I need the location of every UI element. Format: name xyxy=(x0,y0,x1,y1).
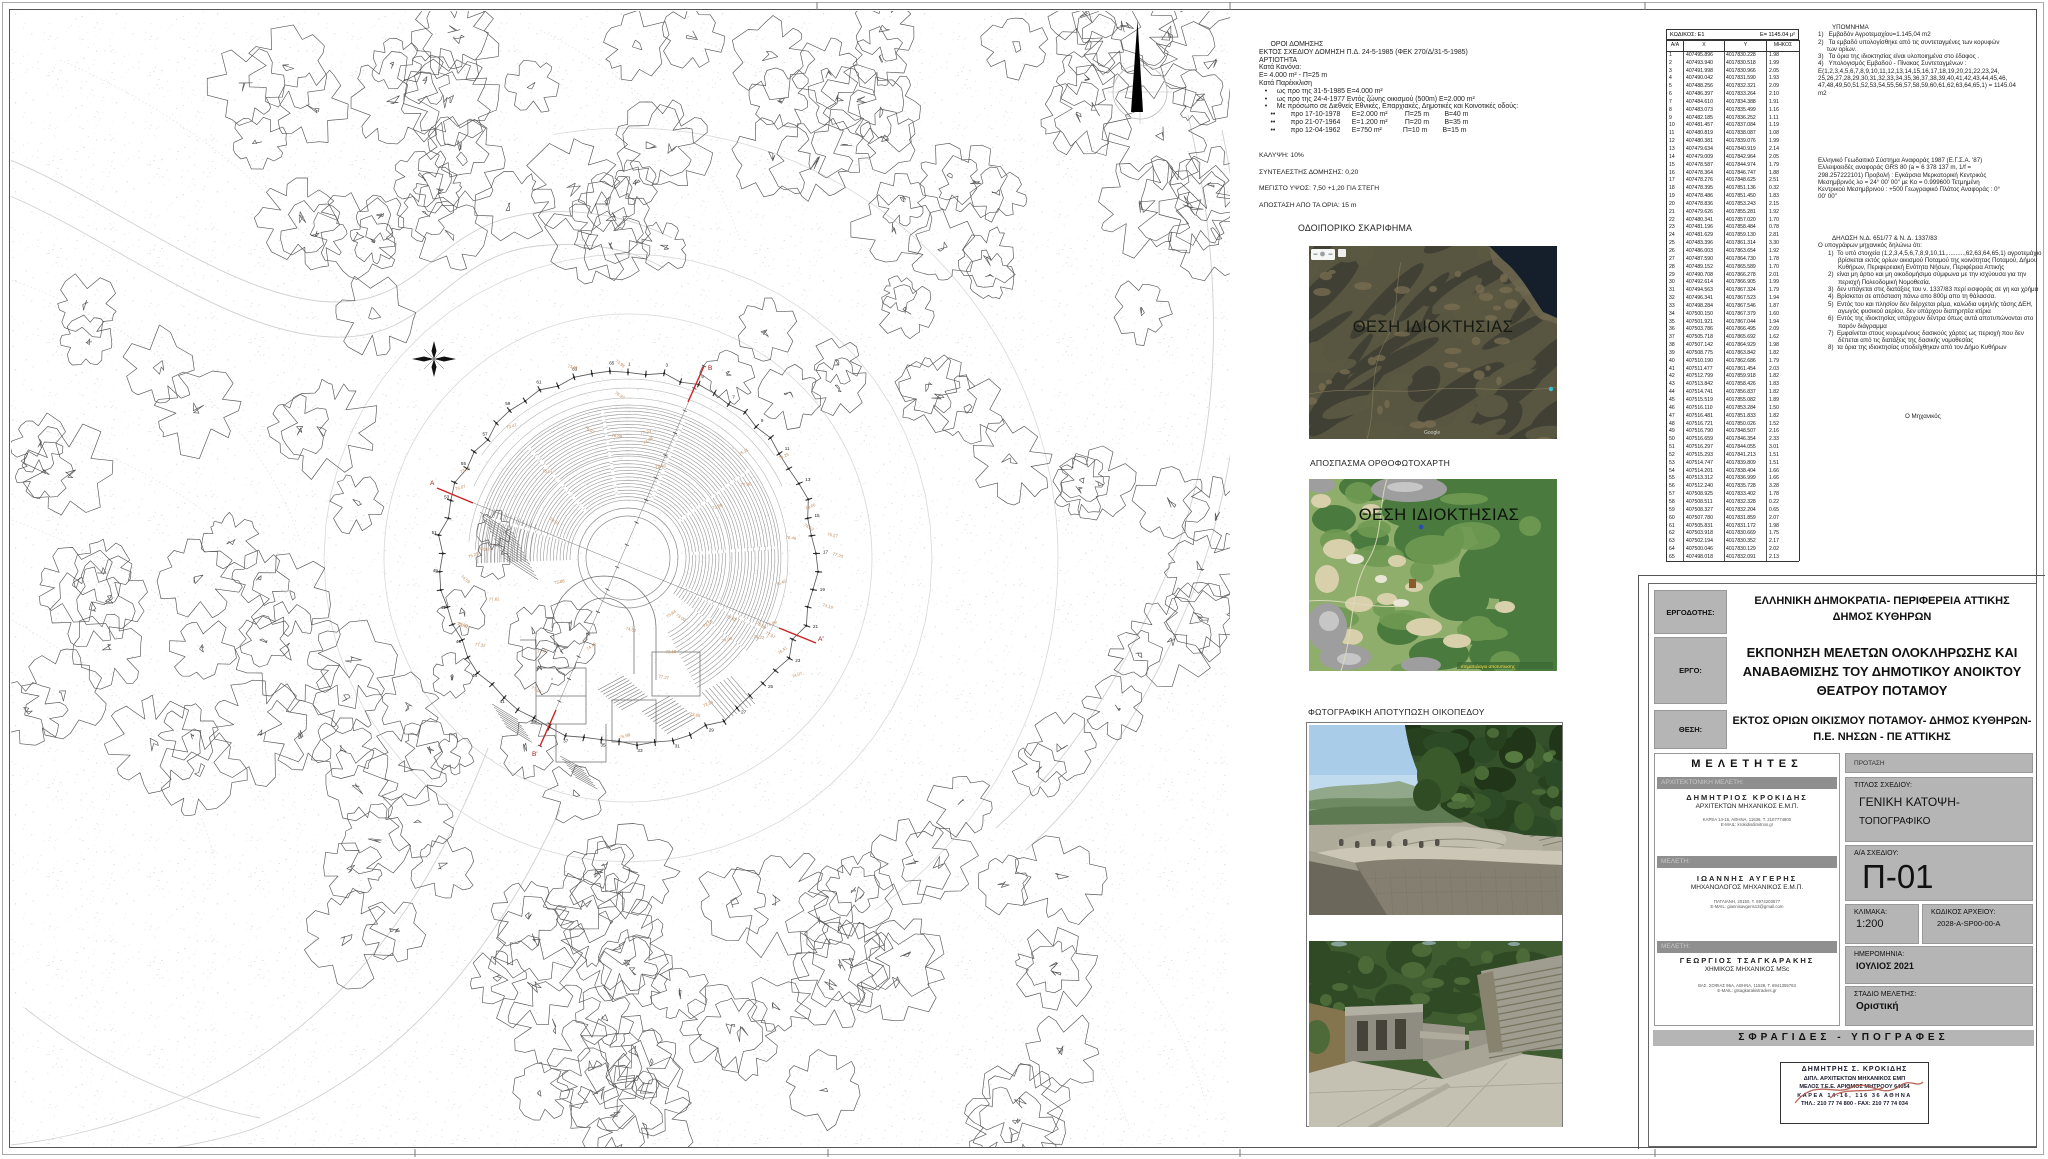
svg-text:κτηματολογιο αποτυπωσης: κτηματολογιο αποτυπωσης xyxy=(1461,664,1516,669)
svg-text:Google: Google xyxy=(1424,430,1440,436)
svg-text:ΘΕΣΗ ΙΔΙΟΚΤΗΣΙΑΣ: ΘΕΣΗ ΙΔΙΟΚΤΗΣΙΑΣ xyxy=(1359,506,1520,524)
svg-text:ΘΕΣΗ ΙΔΙΟΚΤΗΣΙΑΣ: ΘΕΣΗ ΙΔΙΟΚΤΗΣΙΑΣ xyxy=(1353,318,1514,336)
